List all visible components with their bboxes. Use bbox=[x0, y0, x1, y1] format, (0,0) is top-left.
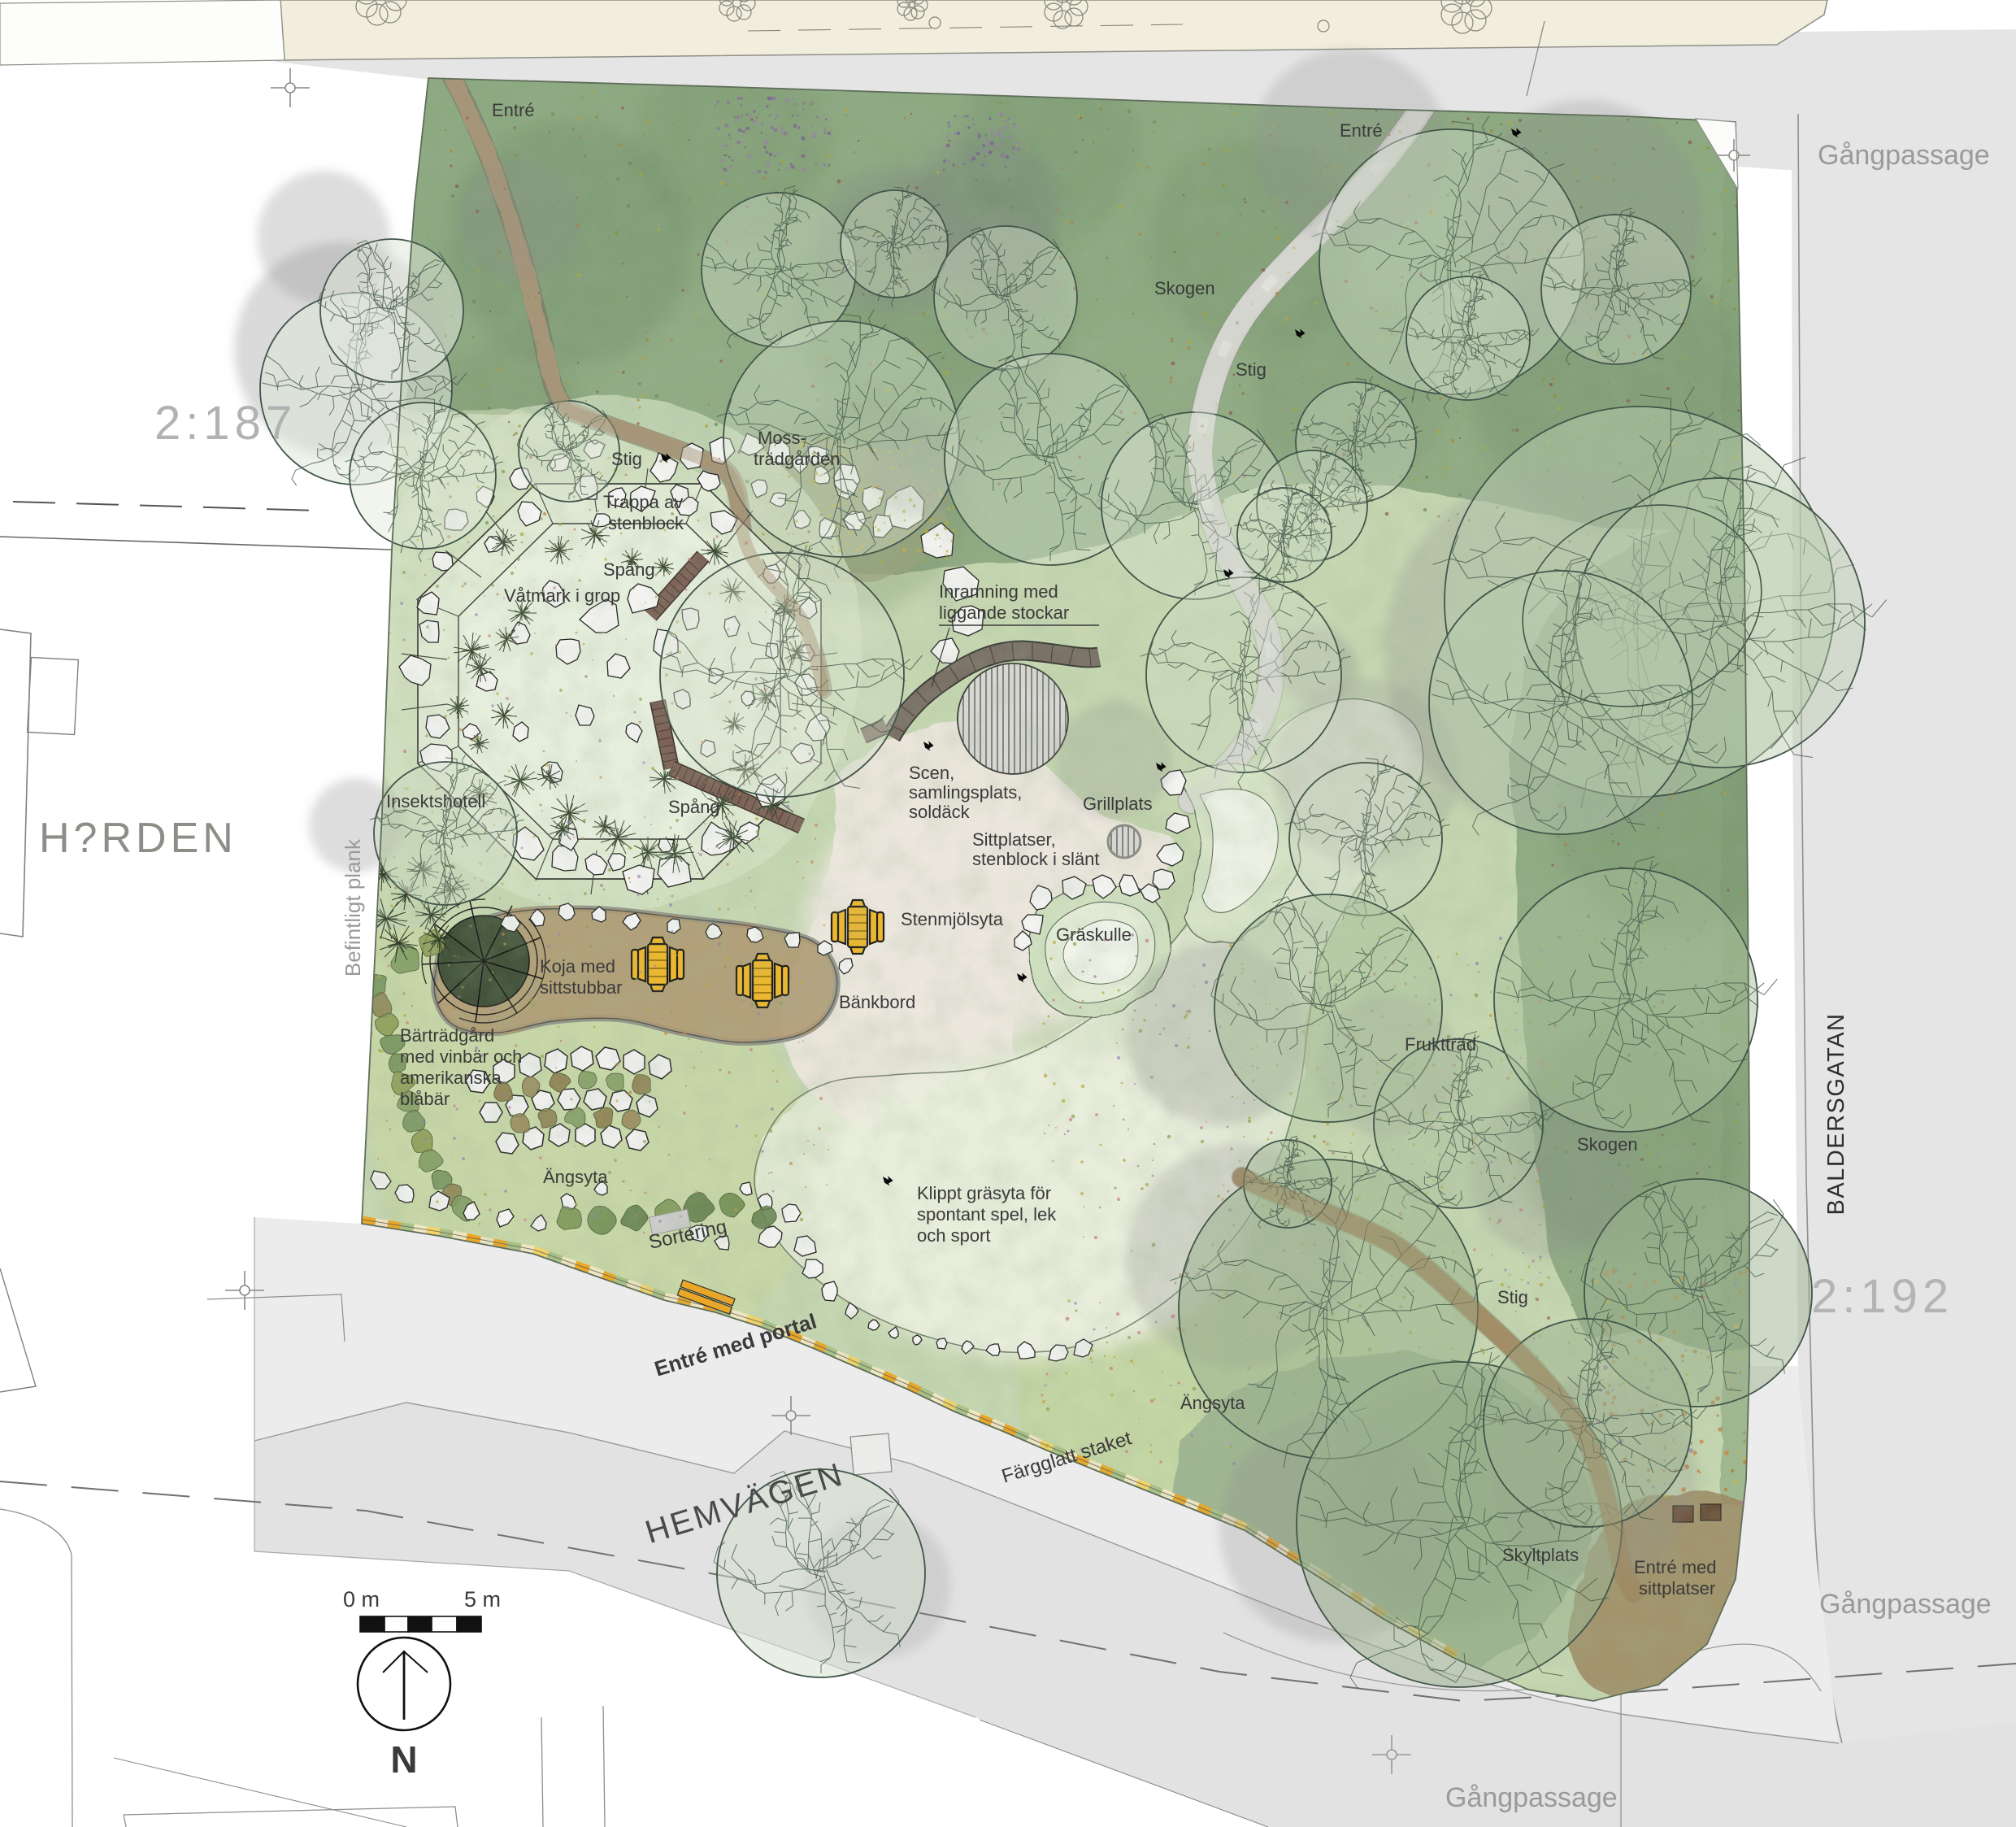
svg-text:Sittplatser,: Sittplatser, bbox=[972, 829, 1056, 850]
svg-text:Skogen: Skogen bbox=[1577, 1134, 1638, 1155]
svg-text:stenblock i slänt: stenblock i slänt bbox=[972, 849, 1100, 869]
svg-text:Entré: Entré bbox=[492, 100, 535, 120]
svg-text:amerikanska: amerikanska bbox=[400, 1068, 502, 1088]
svg-text:Gångpassage: Gångpassage bbox=[1819, 1589, 1992, 1620]
svg-text:Stenmjölsyta: Stenmjölsyta bbox=[901, 909, 1004, 929]
svg-text:Moss-: Moss- bbox=[758, 428, 806, 448]
svg-text:liggande stockar: liggande stockar bbox=[939, 602, 1069, 623]
svg-text:Entré med: Entré med bbox=[1634, 1557, 1717, 1577]
svg-text:Stig: Stig bbox=[1236, 359, 1267, 380]
svg-text:0 m: 0 m bbox=[343, 1587, 380, 1612]
svg-text:Skyltplats: Skyltplats bbox=[1502, 1545, 1579, 1565]
svg-text:Ängsyta: Ängsyta bbox=[543, 1167, 608, 1187]
svg-text:Gräskulle: Gräskulle bbox=[1056, 924, 1132, 945]
svg-text:Scen,: Scen, bbox=[909, 763, 954, 783]
svg-text:samlingsplats,: samlingsplats, bbox=[909, 782, 1022, 803]
svg-text:Skogen: Skogen bbox=[1154, 278, 1215, 298]
svg-text:Koja med: Koja med bbox=[540, 956, 615, 977]
svg-text:soldäck: soldäck bbox=[909, 802, 971, 822]
svg-text:BALDERSGATAN: BALDERSGATAN bbox=[1823, 1013, 1849, 1216]
svg-text:Befintligt plank: Befintligt plank bbox=[341, 838, 365, 977]
svg-text:N: N bbox=[390, 1738, 417, 1781]
svg-text:Spång: Spång bbox=[603, 559, 655, 580]
svg-text:Gångpassage: Gångpassage bbox=[1818, 140, 1990, 171]
svg-text:och sport: och sport bbox=[917, 1225, 991, 1246]
svg-text:Entré: Entré bbox=[1340, 120, 1383, 141]
svg-text:Trappa av: Trappa av bbox=[603, 492, 683, 512]
svg-text:sittstubbar: sittstubbar bbox=[540, 977, 623, 998]
svg-text:Stig: Stig bbox=[611, 449, 642, 469]
svg-text:Ängsyta: Ängsyta bbox=[1180, 1393, 1245, 1413]
svg-text:spontant spel, lek: spontant spel, lek bbox=[917, 1204, 1057, 1225]
svg-text:stenblock: stenblock bbox=[608, 513, 684, 533]
svg-text:Spång: Spång bbox=[668, 797, 720, 817]
svg-text:Insektshotell: Insektshotell bbox=[386, 791, 485, 811]
svg-text:5 m: 5 m bbox=[464, 1587, 501, 1612]
svg-text:Bänkbord: Bänkbord bbox=[839, 992, 915, 1012]
svg-text:Grillplats: Grillplats bbox=[1083, 794, 1153, 814]
svg-text:Bärträdgård: Bärträdgård bbox=[400, 1025, 494, 1046]
svg-text:med vinbär och: med vinbär och bbox=[400, 1046, 522, 1067]
svg-text:Stig: Stig bbox=[1497, 1287, 1528, 1307]
svg-text:Fruktträd: Fruktträd bbox=[1405, 1034, 1476, 1055]
svg-text:trädgården: trädgården bbox=[754, 449, 840, 469]
svg-text:2:187: 2:187 bbox=[154, 397, 297, 450]
svg-text:Inramning med: Inramning med bbox=[939, 581, 1058, 602]
svg-text:sittplatser: sittplatser bbox=[1639, 1578, 1715, 1599]
svg-text:Våtmark i grop: Våtmark i grop bbox=[504, 585, 620, 606]
svg-text:blåbär: blåbär bbox=[400, 1089, 450, 1109]
svg-text:Klippt gräsyta för: Klippt gräsyta för bbox=[917, 1183, 1051, 1203]
svg-text:2:192: 2:192 bbox=[1811, 1270, 1953, 1323]
svg-text:H?RDEN: H?RDEN bbox=[39, 815, 237, 862]
svg-text:Gångpassage: Gångpassage bbox=[1445, 1782, 1618, 1813]
